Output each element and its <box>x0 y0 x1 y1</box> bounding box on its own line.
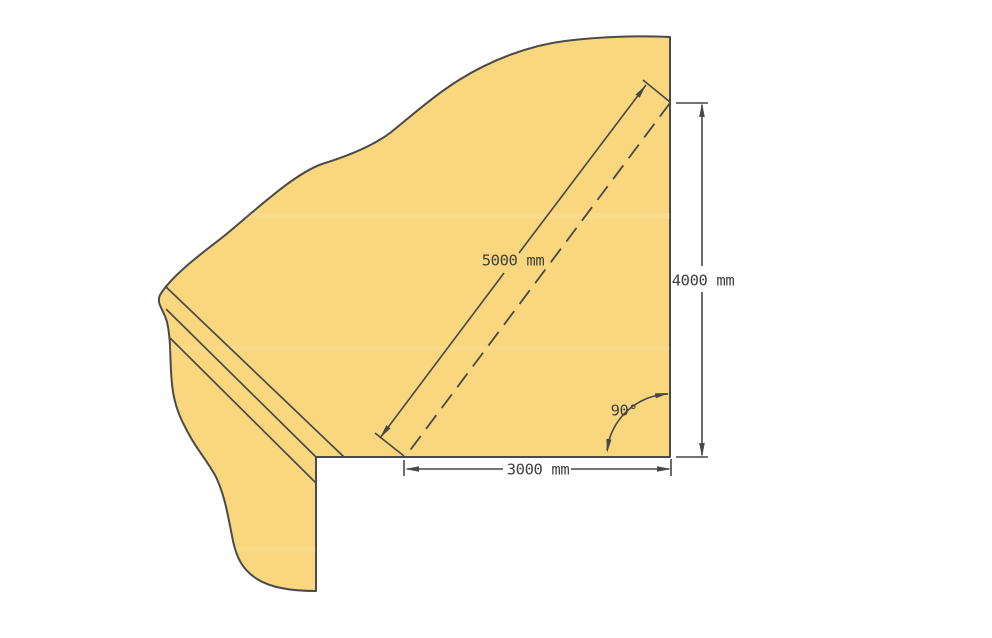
angle-90-label: 90° <box>611 403 638 419</box>
terrain-outline <box>159 36 670 591</box>
dim-3000-label: 3000 mm <box>507 462 570 478</box>
dim-3000-arrow-left <box>405 466 419 472</box>
drawing-canvas: 5000 mm 4000 mm 3000 mm 90° <box>0 0 992 638</box>
dim-3000-arrow-right <box>657 466 671 472</box>
dim-5000-label: 5000 mm <box>482 253 545 269</box>
dim-4000-label: 4000 mm <box>672 273 735 289</box>
dim-4000-arrow-top <box>699 103 705 117</box>
cross-section-drawing <box>0 0 992 638</box>
dim-4000-arrow-bottom <box>699 443 705 457</box>
